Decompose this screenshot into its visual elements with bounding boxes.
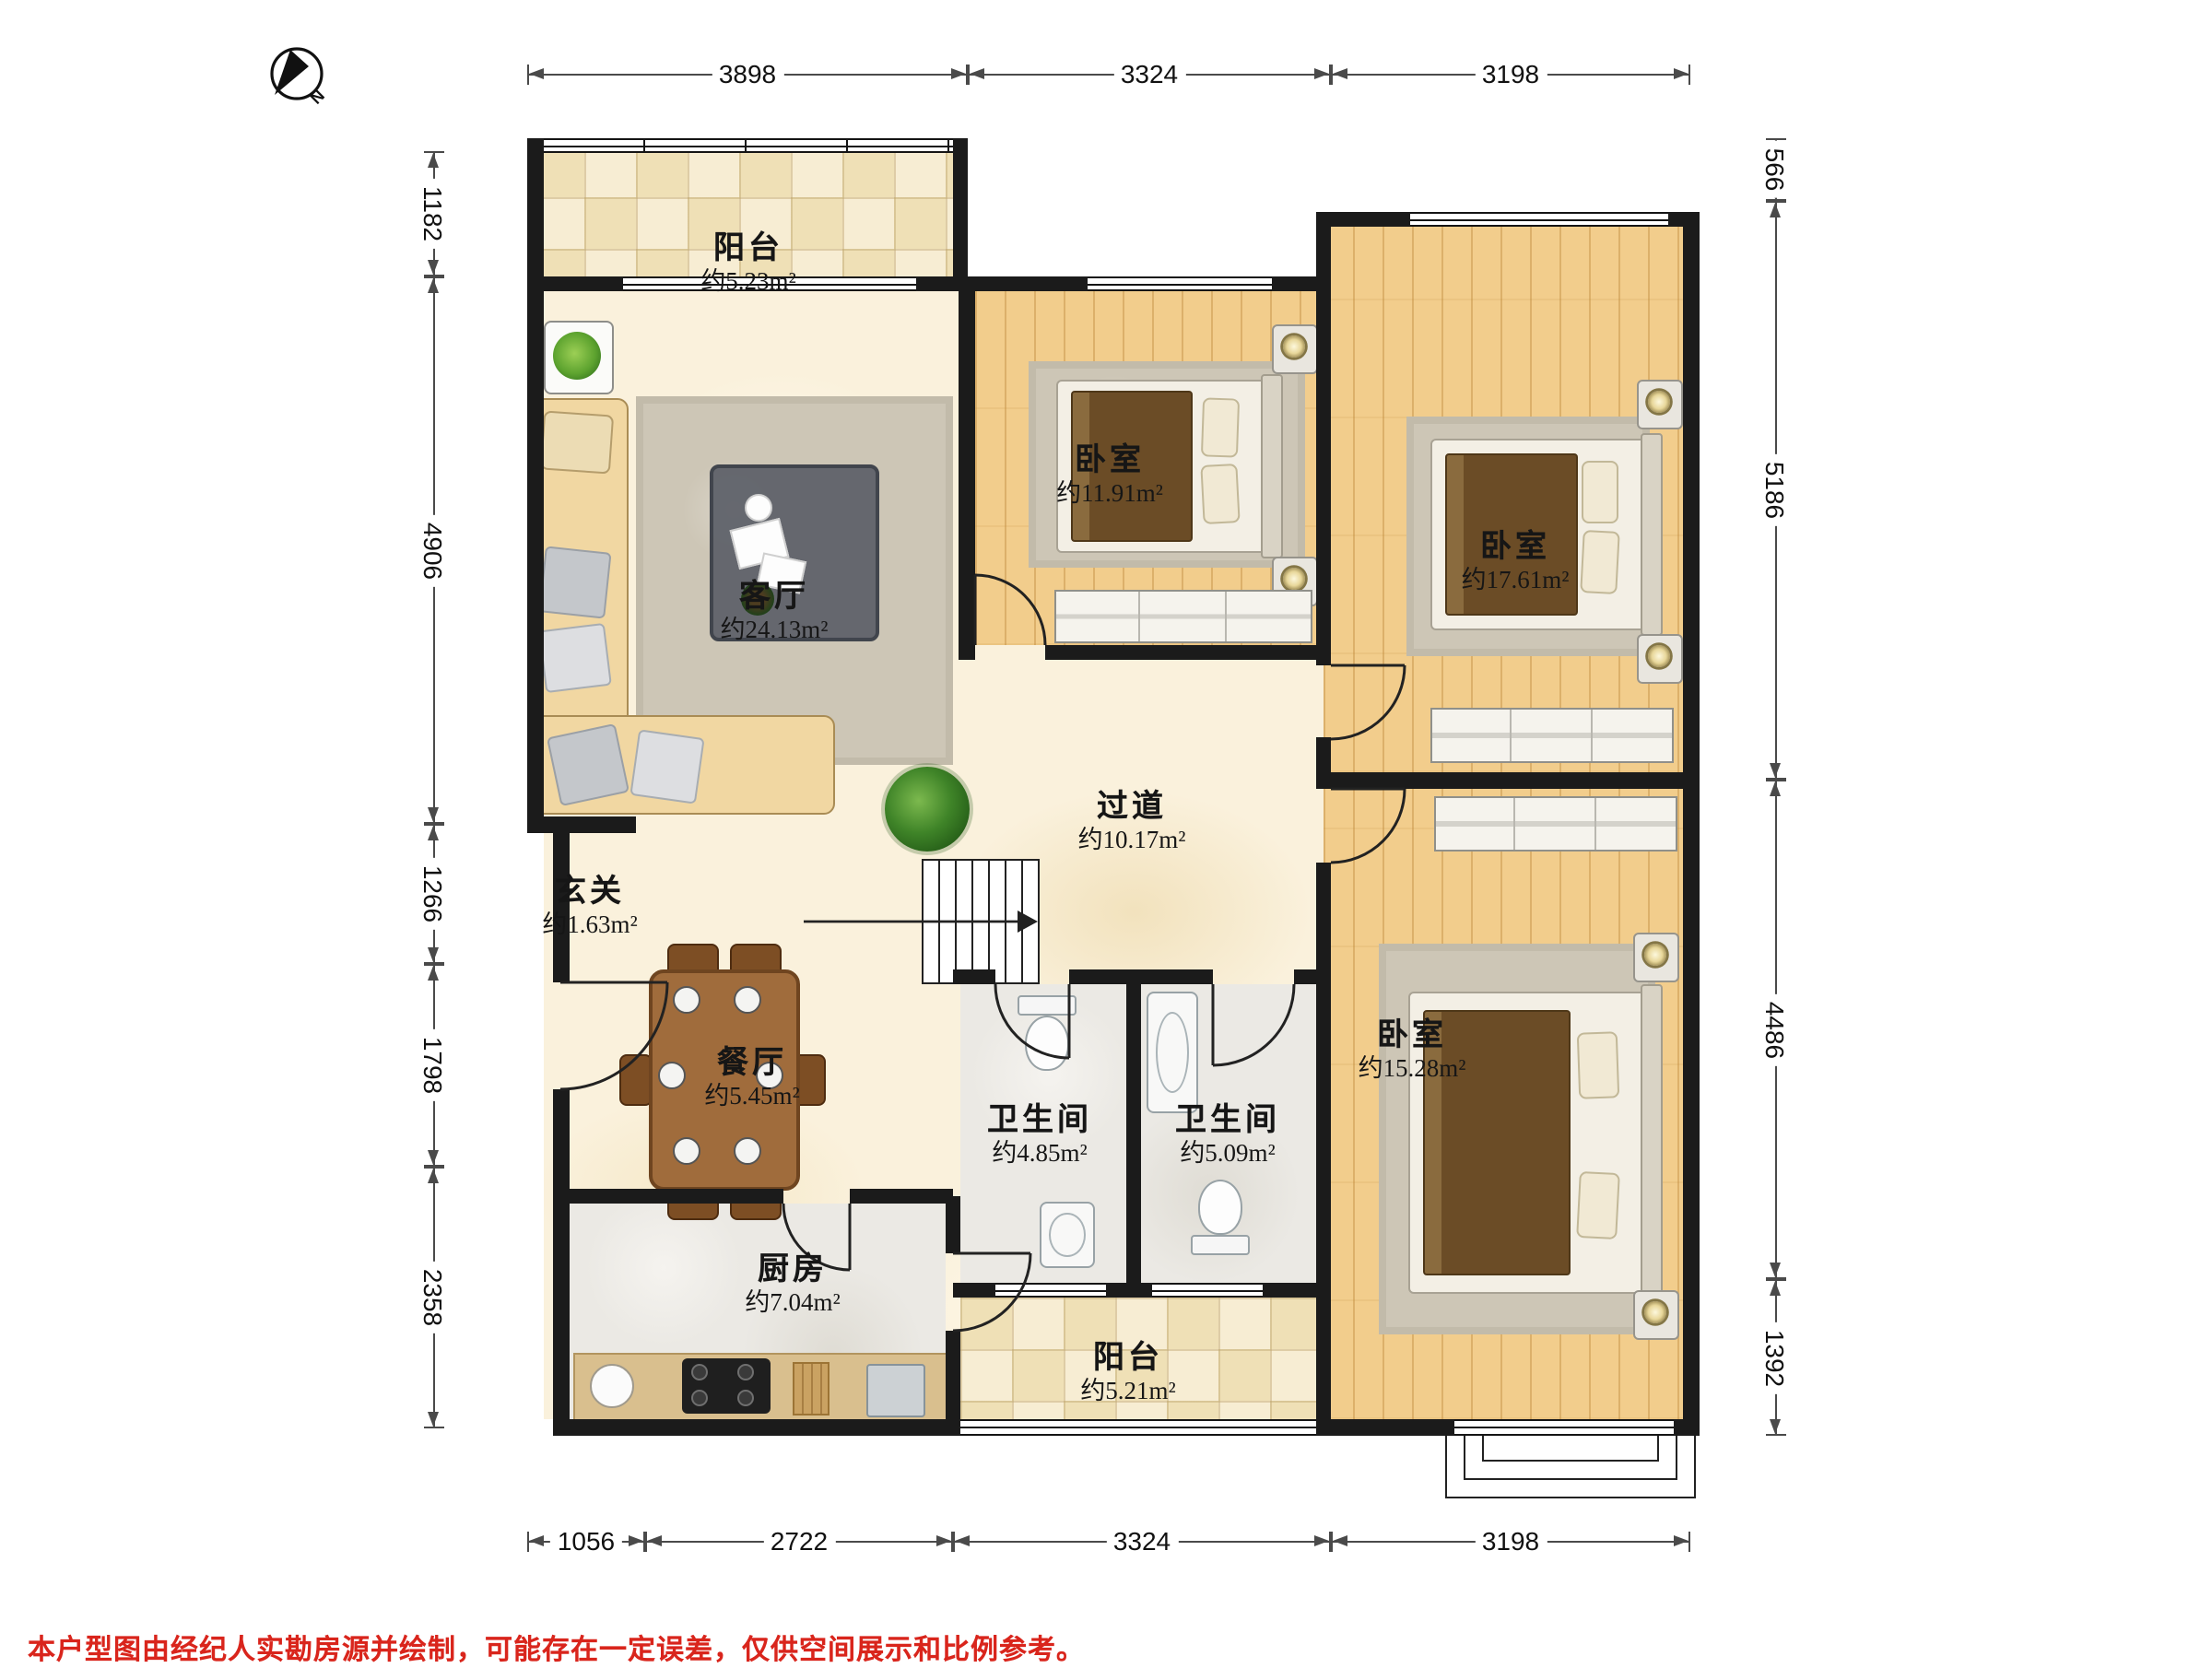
room-area: 约5.23m² bbox=[700, 267, 795, 299]
wall-mid-vertical bbox=[1316, 737, 1331, 772]
wall-bedroom-mid-bottom bbox=[959, 645, 975, 660]
floor-plant-icon bbox=[885, 767, 970, 852]
wall-balcony2-top bbox=[953, 1283, 995, 1298]
wall-bath-top bbox=[953, 969, 995, 984]
burner-icon bbox=[737, 1390, 754, 1406]
dimension-label: 3898 bbox=[712, 59, 783, 88]
plant-icon bbox=[553, 332, 601, 380]
wall-outer-right bbox=[1683, 212, 1700, 1436]
nightstand-lamp-icon bbox=[1283, 568, 1305, 590]
sofa-cushion bbox=[629, 729, 704, 804]
room-name: 阳台 bbox=[1080, 1338, 1175, 1378]
dimension-label: 1182 bbox=[418, 179, 448, 249]
room-label-bedroom-br: 卧室 约15.28m² bbox=[1359, 1016, 1466, 1086]
dimension-label: 1056 bbox=[550, 1526, 622, 1556]
dimension-label: 4486 bbox=[1760, 993, 1790, 1065]
wall-kitchen-right bbox=[946, 1331, 960, 1419]
cabinet bbox=[1054, 590, 1312, 643]
bay-window-line bbox=[1482, 1436, 1659, 1462]
bed-headboard bbox=[1641, 433, 1663, 636]
plate bbox=[673, 1137, 700, 1165]
burner-icon bbox=[691, 1364, 708, 1380]
room-label-bedroom-tr: 卧室 约17.61m² bbox=[1462, 527, 1570, 597]
dimension-label: 4906 bbox=[418, 514, 448, 586]
room-area: 约15.28m² bbox=[1359, 1054, 1466, 1086]
room-area: 约5.45m² bbox=[704, 1082, 799, 1113]
wall-kitchen-top bbox=[850, 1189, 953, 1204]
sofa-cushion bbox=[538, 623, 612, 693]
room-name: 卫生间 bbox=[1175, 1100, 1280, 1140]
sofa-pillow bbox=[540, 410, 614, 474]
room-label-living: 客厅 约24.13m² bbox=[721, 577, 829, 647]
wall-balcony-living bbox=[527, 276, 623, 291]
wall-bath-divider bbox=[1126, 984, 1141, 1283]
dimension-label: 1392 bbox=[1760, 1321, 1790, 1393]
room-label-hallway: 过道 约10.17m² bbox=[1078, 787, 1186, 857]
stairs bbox=[922, 859, 1040, 984]
window-bedroom-mid bbox=[1088, 276, 1272, 291]
floor-plan-canvas: N 阳台 约5.23m² 客厅 约24.13m² 卧室 约11.91m² 卧室 … bbox=[0, 0, 2212, 1659]
bed-headboard bbox=[1261, 374, 1283, 558]
wall-bath-top bbox=[1069, 969, 1213, 984]
compass-circle bbox=[272, 49, 322, 99]
dimension-label: 1798 bbox=[418, 1029, 448, 1101]
room-area: 约11.91m² bbox=[1056, 479, 1163, 511]
window-bedroom-br bbox=[1454, 1419, 1674, 1436]
room-label-bath2: 卫生间 约5.09m² bbox=[1175, 1100, 1280, 1170]
window-bath1 bbox=[995, 1283, 1106, 1298]
room-name: 卧室 bbox=[1056, 440, 1163, 480]
table-dish bbox=[745, 494, 772, 522]
wall-outer-left-upper bbox=[527, 138, 544, 833]
nightstand-lamp-icon bbox=[1644, 1301, 1666, 1323]
dimension-label: 2722 bbox=[763, 1526, 835, 1556]
dining-chair bbox=[619, 1054, 653, 1106]
window-bath2 bbox=[1152, 1283, 1263, 1298]
wall-bedroom-mid-top bbox=[975, 276, 1088, 291]
toilet-tank bbox=[1191, 1235, 1250, 1255]
window-balcony-bottom bbox=[960, 1419, 1316, 1436]
nightstand-lamp-icon bbox=[1648, 391, 1670, 413]
dimension-label: 3198 bbox=[1475, 1526, 1547, 1556]
window-bedroom-tr bbox=[1410, 212, 1668, 227]
room-name: 卧室 bbox=[1359, 1016, 1466, 1055]
dimension-label: 3324 bbox=[1113, 59, 1185, 88]
room-area: 约4.85m² bbox=[987, 1139, 1092, 1170]
plate bbox=[734, 986, 761, 1014]
bed-pillow bbox=[1577, 1031, 1619, 1098]
dimension-label: 1266 bbox=[418, 858, 448, 930]
bed-pillow bbox=[1580, 530, 1620, 594]
wall-bedroom-br-bottom bbox=[1674, 1419, 1700, 1436]
wall-bath-top bbox=[1294, 969, 1331, 984]
wall-balcony-right bbox=[953, 138, 968, 291]
north-arrow-icon bbox=[275, 50, 309, 95]
room-label-entry: 玄关 约1.63m² bbox=[542, 872, 637, 942]
burner-icon bbox=[737, 1364, 754, 1380]
sofa-cushion bbox=[538, 546, 611, 618]
wall-living-bedroom bbox=[959, 276, 975, 660]
wall-bedroom-mid-bottom bbox=[1045, 645, 1331, 660]
toilet-tank bbox=[1018, 995, 1077, 1016]
room-area: 约24.13m² bbox=[721, 616, 829, 647]
room-name: 厨房 bbox=[745, 1250, 840, 1289]
room-area: 约5.21m² bbox=[1080, 1377, 1175, 1408]
wall-entry-stub bbox=[527, 816, 636, 833]
nightstand-lamp-icon bbox=[1648, 645, 1670, 667]
nightstand-lamp-icon bbox=[1644, 944, 1666, 966]
dimension-label: 3324 bbox=[1106, 1526, 1178, 1556]
room-name: 阳台 bbox=[700, 229, 795, 268]
burner-icon bbox=[691, 1390, 708, 1406]
room-label-balcony-bottom: 阳台 约5.21m² bbox=[1080, 1338, 1175, 1408]
wardrobe bbox=[1434, 796, 1677, 852]
sink-bowl bbox=[590, 1364, 634, 1408]
sofa-cushion bbox=[547, 723, 629, 806]
wall-bedroom-br-bottom bbox=[1316, 1419, 1454, 1436]
wall-balcony2-top bbox=[1263, 1283, 1331, 1298]
room-label-dining: 餐厅 约5.45m² bbox=[704, 1043, 799, 1113]
bed-headboard bbox=[1641, 984, 1663, 1301]
room-label-kitchen: 厨房 约7.04m² bbox=[745, 1250, 840, 1320]
toilet-bowl bbox=[1025, 1016, 1069, 1071]
wall-outer-left-lower bbox=[553, 1089, 570, 1436]
compass-label: N bbox=[307, 86, 328, 107]
room-name: 客厅 bbox=[721, 577, 829, 617]
kitchen-sink bbox=[866, 1364, 925, 1417]
wall-kitchen-right bbox=[946, 1196, 960, 1253]
room-label-bedroom-mid: 卧室 约11.91m² bbox=[1056, 440, 1163, 511]
disclaimer-text: 本户型图由经纪人实勘房源并绘制，可能存在一定误差，仅供空间展示和比例参考。 bbox=[28, 1629, 1085, 1668]
dimension-label: 5186 bbox=[1760, 454, 1790, 526]
room-name: 过道 bbox=[1078, 787, 1186, 827]
room-area: 约17.61m² bbox=[1462, 566, 1570, 597]
plate bbox=[658, 1062, 686, 1089]
room-area: 约10.17m² bbox=[1078, 826, 1186, 857]
bed-pillow bbox=[1582, 461, 1618, 523]
room-name: 玄关 bbox=[542, 872, 637, 911]
room-label-balcony-top: 阳台 约5.23m² bbox=[700, 229, 795, 299]
wall-mid-vertical bbox=[1316, 863, 1331, 1436]
nightstand-lamp-icon bbox=[1283, 335, 1305, 358]
bed-pillow bbox=[1200, 464, 1240, 524]
window-balcony-top bbox=[544, 138, 953, 153]
dimension-label: 3198 bbox=[1475, 59, 1547, 88]
plate bbox=[734, 1137, 761, 1165]
room-area: 约1.63m² bbox=[542, 910, 637, 942]
dimension-label: 566 bbox=[1760, 141, 1790, 199]
room-name: 餐厅 bbox=[704, 1043, 799, 1083]
room-label-bath1: 卫生间 约4.85m² bbox=[987, 1100, 1092, 1170]
bed-pillow bbox=[1576, 1171, 1620, 1239]
room-area: 约5.09m² bbox=[1175, 1139, 1280, 1170]
room-name: 卧室 bbox=[1462, 527, 1570, 567]
room-area: 约7.04m² bbox=[745, 1288, 840, 1320]
dimension-label: 2358 bbox=[418, 1262, 448, 1333]
wardrobe bbox=[1430, 708, 1674, 763]
vanity-basin bbox=[1147, 992, 1198, 1113]
wall-balcony2-top bbox=[1106, 1283, 1152, 1298]
compass: N bbox=[272, 49, 328, 108]
plate bbox=[673, 986, 700, 1014]
cutting-board bbox=[793, 1362, 829, 1415]
wall-between-bedrooms bbox=[1316, 772, 1700, 789]
room-name: 卫生间 bbox=[987, 1100, 1092, 1140]
wall-kitchen-top bbox=[557, 1189, 783, 1204]
wall-bedroom-tr-top bbox=[1316, 212, 1410, 227]
bed-pillow bbox=[1201, 397, 1240, 457]
wall-mid-vertical bbox=[1316, 212, 1331, 665]
washbasin bbox=[1040, 1202, 1095, 1268]
toilet-bowl bbox=[1198, 1180, 1242, 1235]
wall-kitchen-bottom bbox=[553, 1419, 960, 1436]
